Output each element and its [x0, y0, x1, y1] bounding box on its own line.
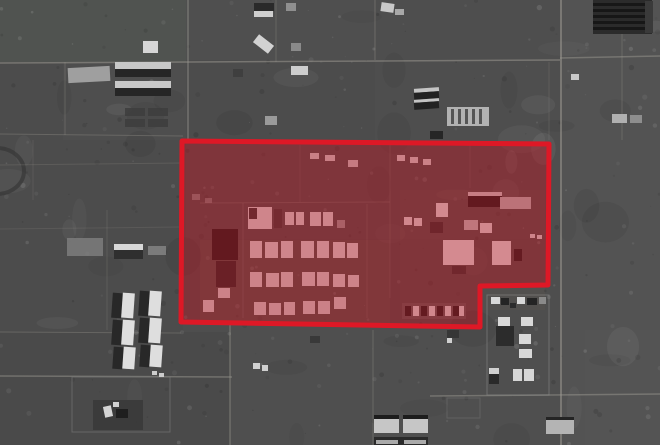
- terrain-speckle: [632, 242, 634, 244]
- terrain-speckle: [475, 425, 479, 429]
- terrain-speckle: [176, 195, 179, 198]
- terrain-speckle: [551, 380, 555, 384]
- building: [149, 345, 163, 368]
- terrain-mottle: [216, 110, 252, 135]
- terrain-speckle: [102, 46, 105, 49]
- terrain-speckle: [463, 390, 467, 394]
- terrain-speckle: [402, 23, 404, 25]
- terrain-speckle: [6, 388, 11, 393]
- building: [148, 318, 162, 344]
- building: [113, 402, 119, 407]
- terrain-speckle: [161, 20, 165, 24]
- terrain-speckle: [577, 49, 580, 52]
- building: [112, 347, 124, 370]
- terrain-speckle: [335, 96, 337, 98]
- terrain-speckle: [107, 141, 110, 144]
- building: [291, 43, 301, 51]
- terrain-speckle: [537, 5, 542, 10]
- building: [403, 415, 428, 419]
- terrain-speckle: [82, 123, 86, 127]
- terrain-speckle: [34, 192, 38, 196]
- terrain-speckle: [205, 384, 209, 388]
- terrain-speckle: [202, 411, 206, 415]
- terrain-speckle: [172, 8, 174, 10]
- building: [472, 109, 475, 124]
- terrain-speckle: [131, 205, 136, 210]
- terrain-speckle: [623, 39, 626, 42]
- terrain-speckle: [505, 440, 507, 442]
- terrain-speckle: [461, 370, 465, 374]
- building: [68, 66, 111, 83]
- building: [519, 349, 532, 358]
- terrain-speckle: [259, 89, 264, 94]
- terrain-speckle: [343, 126, 345, 128]
- terrain-speckle: [171, 361, 174, 364]
- satellite-image: [0, 0, 660, 445]
- terrain-speckle: [292, 56, 294, 58]
- building: [114, 250, 143, 259]
- terrain-speckle: [635, 355, 640, 360]
- building: [67, 238, 103, 256]
- terrain-speckle: [533, 341, 537, 345]
- terrain-speckle: [318, 425, 320, 427]
- terrain-speckle: [201, 344, 205, 348]
- terrain-mottle: [57, 80, 72, 114]
- building: [115, 69, 171, 77]
- terrain-speckle: [653, 123, 657, 127]
- terrain-speckle: [147, 416, 149, 418]
- terrain-mottle: [383, 335, 418, 347]
- building: [496, 326, 514, 346]
- terrain-speckle: [415, 335, 419, 339]
- terrain-speckle: [265, 376, 269, 380]
- building: [233, 69, 243, 77]
- terrain-speckle: [205, 416, 207, 418]
- terrain-speckle: [418, 381, 420, 383]
- terrain-mottle: [582, 202, 629, 243]
- terrain-speckle: [108, 350, 112, 354]
- terrain-speckle: [652, 254, 654, 256]
- terrain-mottle: [62, 219, 76, 240]
- terrain-mottle: [539, 120, 575, 132]
- terrain-speckle: [616, 358, 621, 363]
- building: [265, 116, 277, 125]
- terrain-speckle: [464, 4, 467, 7]
- terrain-speckle: [165, 387, 169, 391]
- terrain-speckle: [327, 364, 331, 368]
- terrain-speckle: [495, 319, 498, 322]
- building: [148, 108, 168, 116]
- terrain-speckle: [171, 184, 175, 188]
- terrain-speckle: [158, 153, 160, 155]
- building: [630, 115, 642, 123]
- terrain-speckle: [455, 61, 457, 63]
- terrain-speckle: [144, 29, 148, 33]
- terrain-patch: [0, 62, 63, 140]
- terrain-speckle: [125, 29, 126, 30]
- terrain-speckle: [236, 15, 238, 17]
- building: [447, 338, 452, 343]
- building: [645, 1, 653, 33]
- terrain-speckle: [442, 396, 446, 400]
- terrain-speckle: [610, 324, 614, 328]
- building: [139, 345, 151, 368]
- terrain-speckle: [252, 409, 254, 411]
- terrain-speckle: [92, 379, 93, 380]
- terrain-mottle: [37, 317, 79, 329]
- terrain-speckle: [519, 329, 522, 332]
- building: [374, 415, 399, 419]
- terrain-mottle: [88, 256, 123, 276]
- terrain-speckle: [72, 43, 74, 45]
- building: [593, 21, 652, 24]
- terrain-speckle: [187, 405, 192, 410]
- building: [612, 114, 627, 123]
- terrain-speckle: [555, 326, 556, 327]
- terrain-speckle: [103, 127, 107, 131]
- terrain-speckle: [68, 216, 70, 218]
- terrain-speckle: [396, 341, 398, 343]
- terrain-speckle: [343, 88, 346, 91]
- terrain-speckle: [622, 224, 626, 228]
- building: [395, 9, 404, 15]
- terrain-speckle: [0, 34, 3, 37]
- terrain-speckle: [502, 76, 507, 81]
- terrain-speckle: [177, 441, 181, 445]
- terrain-speckle: [218, 340, 223, 345]
- terrain-speckle: [201, 40, 202, 41]
- building: [380, 2, 394, 13]
- building: [571, 74, 579, 80]
- terrain-speckle: [308, 10, 309, 11]
- terrain-speckle: [219, 390, 222, 393]
- building: [374, 419, 399, 433]
- terrain-speckle: [585, 47, 587, 49]
- terrain-speckle: [25, 241, 29, 245]
- building: [451, 109, 454, 124]
- terrain-speckle: [219, 348, 223, 352]
- building: [125, 108, 145, 116]
- terrain-speckle: [391, 43, 392, 44]
- terrain-speckle: [483, 75, 485, 77]
- building: [376, 440, 398, 444]
- terrain-mottle: [382, 53, 405, 88]
- terrain-speckle: [195, 92, 200, 97]
- building: [510, 303, 516, 308]
- terrain-speckle: [464, 379, 467, 382]
- building: [253, 363, 260, 369]
- terrain-speckle: [83, 2, 87, 6]
- building: [593, 9, 652, 12]
- terrain-speckle: [72, 300, 74, 302]
- terrain-speckle: [172, 370, 177, 375]
- screenshot-root: [0, 0, 660, 445]
- terrain-speckle: [585, 274, 587, 276]
- terrain-speckle: [413, 101, 414, 102]
- terrain-mottle: [521, 95, 555, 114]
- building: [114, 244, 143, 250]
- terrain-speckle: [302, 84, 304, 86]
- building: [115, 88, 171, 96]
- terrain-speckle: [556, 33, 558, 35]
- terrain-speckle: [556, 266, 559, 269]
- building: [286, 3, 296, 11]
- building: [121, 320, 135, 346]
- building: [519, 334, 531, 344]
- terrain-speckle: [536, 122, 538, 124]
- terrain-speckle: [478, 365, 480, 367]
- terrain-speckle: [392, 101, 397, 106]
- terrain-speckle: [99, 391, 101, 393]
- terrain-speckle: [101, 294, 103, 296]
- terrain-speckle: [53, 82, 57, 86]
- terrain-speckle: [593, 409, 598, 414]
- terrain-speckle: [22, 221, 24, 223]
- building: [111, 293, 123, 319]
- terrain-speckle: [652, 48, 656, 52]
- building: [465, 109, 468, 124]
- terrain-speckle: [26, 171, 28, 173]
- building: [524, 369, 534, 381]
- terrain-speckle: [56, 66, 59, 69]
- building: [501, 298, 509, 305]
- terrain-speckle: [646, 414, 651, 419]
- terrain-speckle: [550, 26, 555, 31]
- terrain-speckle: [655, 29, 660, 34]
- building: [138, 291, 150, 317]
- building: [152, 371, 157, 375]
- terrain-speckle: [11, 83, 15, 87]
- terrain-speckle: [100, 148, 101, 149]
- building: [115, 62, 171, 69]
- building: [404, 440, 426, 444]
- building: [489, 374, 499, 384]
- building: [148, 291, 162, 317]
- terrain-speckle: [161, 301, 166, 306]
- terrain-speckle: [66, 148, 68, 150]
- terrain-speckle: [642, 94, 647, 99]
- terrain-speckle: [431, 335, 434, 338]
- terrain-speckle: [514, 344, 519, 349]
- terrain-speckle: [332, 37, 334, 39]
- terrain-speckle: [586, 220, 588, 222]
- terrain-speckle: [638, 106, 642, 110]
- terrain-speckle: [405, 31, 406, 32]
- building: [513, 369, 522, 381]
- building: [116, 409, 128, 418]
- terrain-speckle: [193, 132, 198, 137]
- terrain-speckle: [550, 347, 554, 351]
- terrain-speckle: [339, 76, 343, 80]
- terrain-speckle: [31, 11, 34, 14]
- terrain-speckle: [305, 433, 306, 434]
- terrain-speckle: [86, 123, 87, 124]
- terrain-mottle: [400, 399, 448, 417]
- terrain-speckle: [554, 225, 559, 230]
- terrain-speckle: [474, 78, 475, 79]
- terrain-speckle: [44, 213, 47, 216]
- building: [115, 81, 171, 88]
- building: [498, 317, 510, 326]
- terrain-speckle: [535, 375, 540, 380]
- terrain-speckle: [62, 120, 63, 121]
- terrain-speckle: [629, 65, 634, 70]
- terrain-speckle: [70, 377, 75, 382]
- terrain-speckle: [410, 372, 412, 374]
- terrain-speckle: [6, 162, 8, 164]
- terrain-speckle: [18, 36, 22, 40]
- building: [403, 419, 428, 433]
- terrain-speckle: [630, 261, 634, 265]
- terrain-speckle: [361, 127, 363, 129]
- terrain-speckle: [446, 420, 448, 422]
- terrain-speckle: [180, 330, 184, 334]
- building: [310, 336, 320, 343]
- terrain-speckle: [26, 411, 31, 416]
- building: [546, 420, 574, 434]
- building: [159, 373, 164, 377]
- terrain-speckle: [132, 160, 133, 161]
- building: [121, 293, 135, 319]
- terrain-speckle: [68, 194, 69, 195]
- building: [479, 109, 482, 124]
- terrain-speckle: [229, 1, 233, 5]
- building: [254, 11, 273, 17]
- building: [430, 131, 443, 139]
- terrain-speckle: [609, 429, 612, 432]
- terrain-mottle: [538, 41, 590, 55]
- building: [254, 3, 274, 11]
- terrain-speckle: [629, 47, 633, 51]
- terrain-speckle: [650, 206, 651, 207]
- terrain-mottle: [125, 131, 156, 157]
- terrain-speckle: [585, 42, 589, 46]
- terrain-speckle: [544, 290, 547, 293]
- terrain-speckle: [249, 122, 250, 123]
- terrain-mottle: [265, 360, 307, 375]
- terrain-speckle: [528, 38, 530, 40]
- terrain-speckle: [454, 127, 457, 130]
- terrain-speckle: [6, 128, 7, 129]
- terrain-speckle: [553, 284, 555, 286]
- building: [593, 15, 652, 18]
- building: [125, 119, 145, 127]
- terrain-speckle: [255, 353, 256, 354]
- terrain-speckle: [398, 379, 402, 383]
- building: [148, 246, 166, 255]
- terrain-speckle: [135, 210, 138, 213]
- terrain-speckle: [338, 15, 341, 18]
- terrain-speckle: [628, 339, 631, 342]
- satellite-scene: [0, 0, 660, 445]
- terrain-speckle: [525, 133, 526, 134]
- terrain-speckle: [26, 141, 29, 144]
- terrain-speckle: [527, 358, 529, 360]
- terrain-speckle: [585, 94, 586, 95]
- building: [489, 368, 499, 374]
- terrain-speckle: [152, 278, 154, 280]
- terrain-speckle: [526, 66, 527, 67]
- building: [291, 66, 308, 75]
- terrain-speckle: [345, 56, 346, 57]
- building: [262, 365, 268, 371]
- terrain-speckle: [224, 350, 229, 355]
- building: [491, 297, 500, 304]
- terrain-mottle: [607, 327, 639, 366]
- building: [111, 320, 123, 346]
- terrain-speckle: [534, 327, 538, 331]
- terrain-speckle: [565, 84, 570, 89]
- terrain-speckle: [105, 14, 108, 17]
- terrain-speckle: [260, 73, 264, 77]
- terrain-speckle: [395, 334, 399, 338]
- terrain-speckle: [567, 70, 569, 72]
- building: [521, 317, 533, 326]
- building: [458, 109, 461, 124]
- terrain-speckle: [616, 162, 620, 166]
- terrain-speckle: [271, 337, 274, 340]
- building: [148, 119, 168, 127]
- terrain-speckle: [629, 291, 633, 295]
- building: [539, 297, 546, 304]
- building: [517, 297, 525, 304]
- terrain-patch: [186, 0, 375, 60]
- terrain-mottle: [342, 10, 382, 23]
- terrain-patch: [0, 0, 186, 62]
- terrain-speckle: [645, 406, 649, 410]
- building: [447, 330, 459, 338]
- terrain-speckle: [131, 148, 134, 151]
- building: [593, 27, 652, 30]
- terrain-speckle: [123, 142, 128, 147]
- terrain-speckle: [655, 17, 658, 20]
- building: [527, 298, 537, 305]
- terrain-speckle: [117, 117, 122, 122]
- terrain-speckle: [269, 132, 271, 134]
- building: [143, 41, 158, 53]
- terrain-speckle: [376, 13, 379, 16]
- terrain-speckle: [346, 333, 348, 335]
- building: [138, 318, 150, 344]
- terrain-speckle: [583, 349, 586, 352]
- terrain-speckle: [379, 372, 384, 377]
- terrain-speckle: [509, 110, 512, 113]
- building: [593, 3, 652, 6]
- building: [122, 347, 136, 370]
- terrain-speckle: [565, 189, 567, 191]
- terrain-speckle: [288, 359, 293, 364]
- terrain-speckle: [426, 347, 428, 349]
- terrain-speckle: [83, 99, 86, 102]
- terrain-speckle: [613, 175, 615, 177]
- terrain-speckle: [317, 384, 321, 388]
